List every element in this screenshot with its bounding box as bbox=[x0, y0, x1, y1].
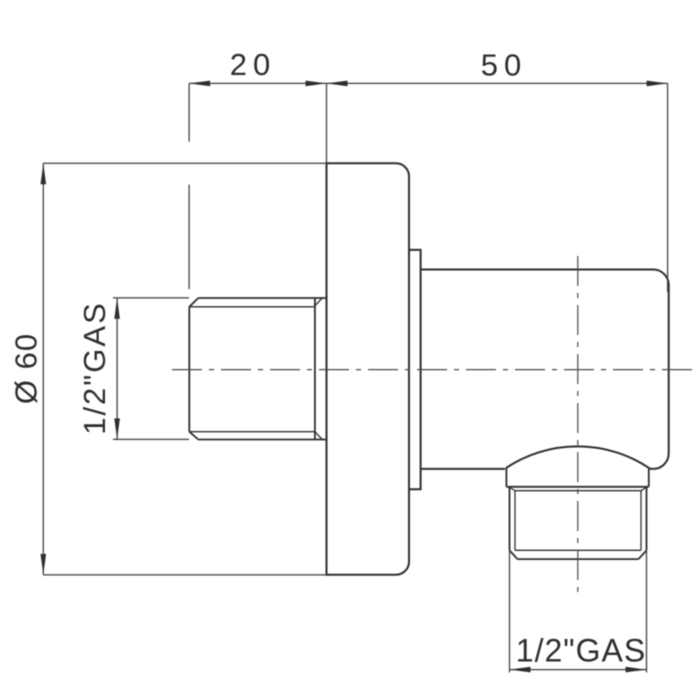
svg-text:50: 50 bbox=[481, 48, 527, 83]
svg-text:1/2"GAS: 1/2"GAS bbox=[77, 301, 112, 435]
svg-text:1/2"GAS: 1/2"GAS bbox=[516, 633, 646, 669]
svg-text:Ø 60: Ø 60 bbox=[9, 333, 44, 404]
svg-text:20: 20 bbox=[230, 47, 276, 82]
